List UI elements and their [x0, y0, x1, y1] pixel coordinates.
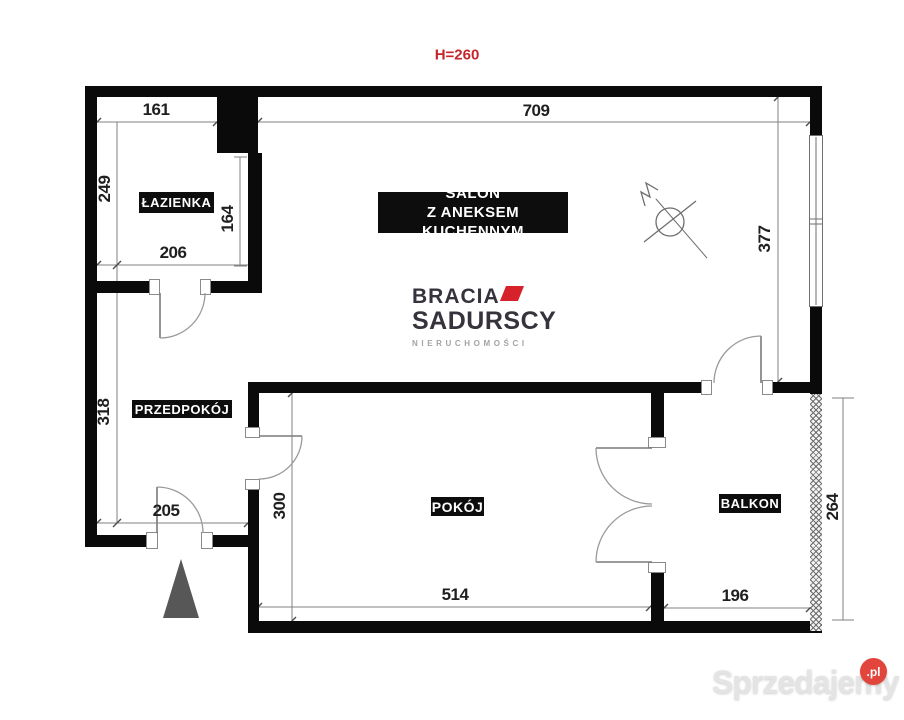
dim-przedpokoj-width: 205: [153, 501, 180, 521]
door-room: [259, 436, 302, 479]
agency-logo: BRACIA SADURSCY NIERUCHOMOŚCI: [412, 286, 556, 348]
ceiling-height-note: H=260: [435, 47, 480, 64]
agency-logo-line2: SADURSCY: [412, 309, 556, 334]
dim-lazienka-height-right: 164: [218, 206, 238, 233]
dim-pokoj-width: 514: [442, 585, 469, 605]
dim-salon-width-top: 709: [523, 101, 550, 121]
dim-pokoj-height: 300: [270, 493, 290, 520]
agency-logo-text1: BRACIA: [412, 286, 500, 307]
north-arrow-icon: [641, 183, 707, 258]
room-label-pokoj: POKÓJ: [431, 497, 484, 516]
room-label-salon-line1: SALON: [446, 184, 501, 203]
dim-lazienka-width-bottom: 206: [160, 243, 187, 263]
dim-salon-height-right: 377: [755, 226, 775, 253]
window-ticks: [809, 137, 823, 305]
door-french-double: [596, 448, 652, 562]
agency-logo-line3: NIERUCHOMOŚCI: [412, 340, 556, 348]
dim-lazienka-height-left: 249: [95, 176, 115, 203]
dim-balkon-width: 196: [722, 586, 749, 606]
north-triangle-icon: [163, 559, 199, 618]
room-label-salon-line2: Z ANEKSEM KUCHENNYM: [378, 203, 568, 241]
agency-logo-red-mark-icon: [500, 286, 524, 301]
door-bathroom: [160, 293, 205, 338]
symbols-layer: [0, 0, 904, 720]
watermark-pl-badge: .pl: [860, 658, 887, 685]
watermark: Sprzedajemy .pl: [712, 664, 898, 701]
room-label-salon: SALON Z ANEKSEM KUCHENNYM: [378, 192, 568, 233]
floor-plan: H=260 161 709 249 164 206 318 205 377 30…: [0, 0, 904, 720]
door-balcony: [714, 336, 761, 383]
room-label-balkon: BALKON: [719, 494, 781, 513]
agency-logo-line1: BRACIA: [412, 286, 556, 307]
room-label-lazienka: ŁAZIENKA: [139, 192, 214, 213]
dim-lazienka-width-top: 161: [143, 100, 170, 120]
room-label-przedpokoj: PRZEDPOKÓJ: [132, 400, 232, 418]
dim-przedpokoj-height: 318: [94, 399, 114, 426]
dim-balkon-height: 264: [823, 494, 843, 521]
